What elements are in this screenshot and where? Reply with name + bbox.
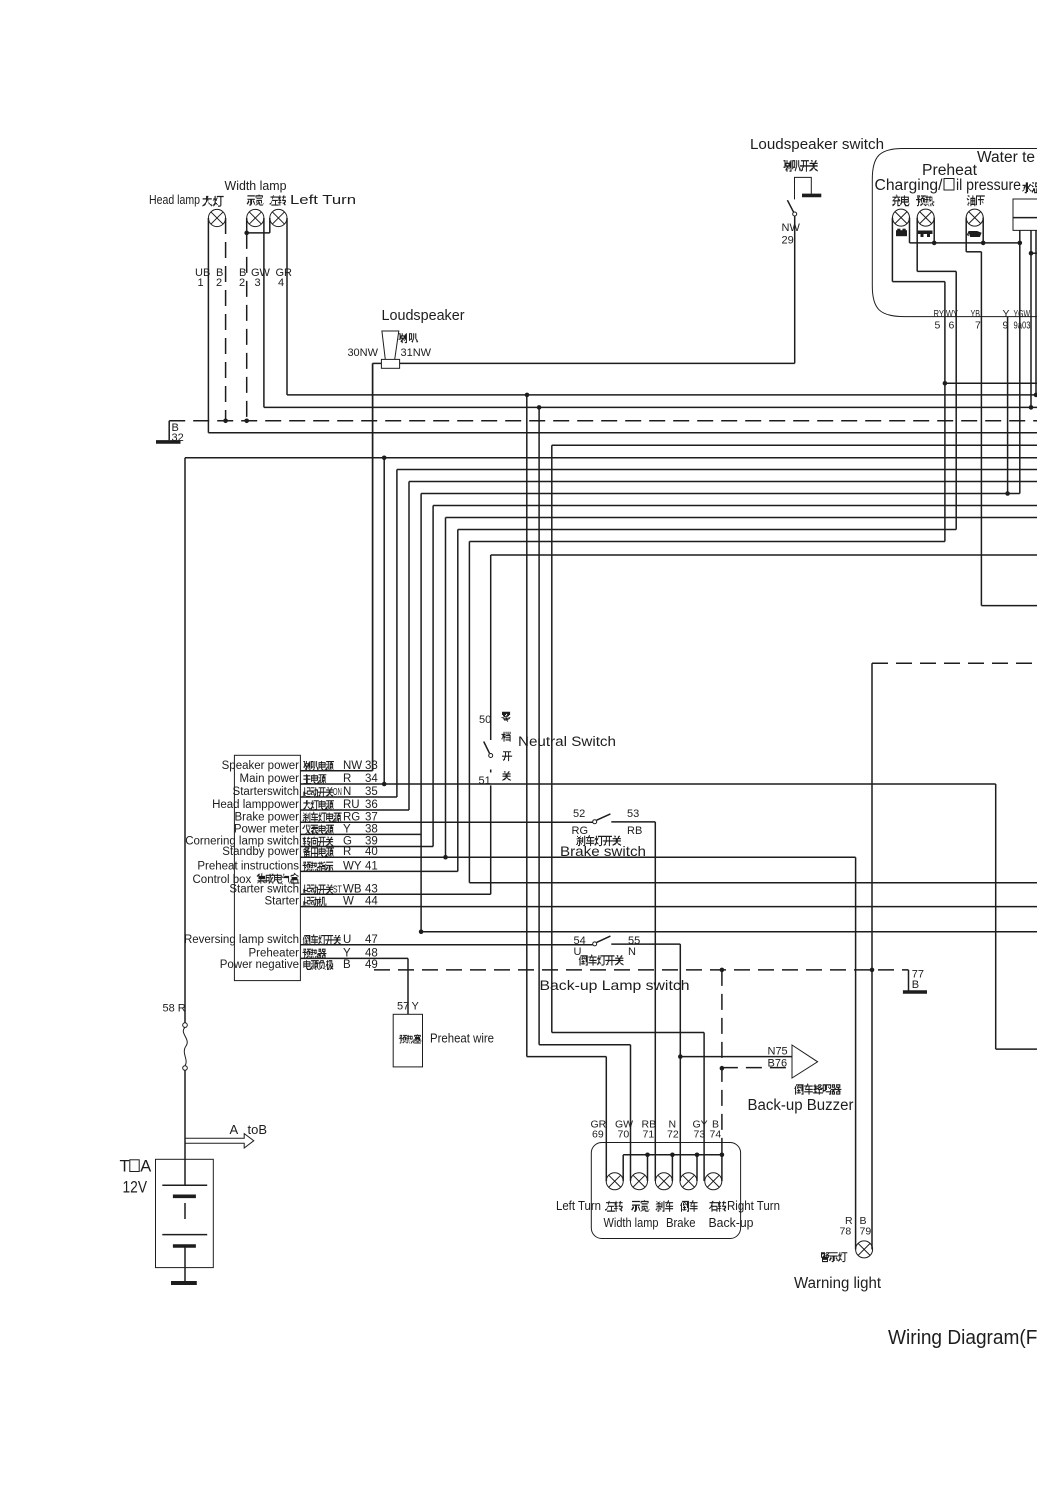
svg-text:Starter switch: Starter switch <box>229 883 299 895</box>
svg-text:71: 71 <box>643 1129 655 1141</box>
svg-text:B: B <box>912 979 919 991</box>
svg-text:T: T <box>120 1158 130 1176</box>
svg-text:B: B <box>343 959 351 971</box>
svg-text:Head lamppower: Head lamppower <box>212 799 299 811</box>
svg-text:35: 35 <box>365 786 378 798</box>
svg-text:YB: YB <box>971 308 981 320</box>
svg-text:6: 6 <box>949 320 955 332</box>
svg-text:31NW: 31NW <box>401 347 432 359</box>
svg-text:Brake power: Brake power <box>234 811 299 823</box>
svg-text:72: 72 <box>667 1129 679 1141</box>
svg-text:Standby power: Standby power <box>222 846 299 858</box>
svg-text:WY: WY <box>946 308 958 320</box>
svg-text:RG: RG <box>343 811 360 823</box>
svg-text:53: 53 <box>627 808 639 820</box>
svg-text:Width lamp: Width lamp <box>225 178 287 193</box>
svg-text:51: 51 <box>479 775 491 787</box>
svg-text:NW: NW <box>782 222 801 234</box>
svg-text:Warning light: Warning light <box>794 1275 882 1292</box>
svg-text:38: 38 <box>365 823 378 835</box>
svg-text:Neutral Switch: Neutral Switch <box>518 734 616 749</box>
svg-text:49: 49 <box>365 959 378 971</box>
svg-text:N: N <box>343 786 351 798</box>
svg-text:79: 79 <box>860 1226 872 1238</box>
svg-text:Back-up: Back-up <box>709 1216 754 1230</box>
svg-text:Y: Y <box>343 823 351 835</box>
svg-text:40: 40 <box>365 846 378 858</box>
svg-text:Y: Y <box>343 947 351 959</box>
svg-text:43: 43 <box>365 883 378 895</box>
svg-text:U: U <box>343 934 351 946</box>
svg-text:37: 37 <box>365 811 378 823</box>
svg-text:toB: toB <box>248 1122 268 1137</box>
svg-text:N75: N75 <box>768 1046 788 1058</box>
svg-text:4: 4 <box>278 277 284 289</box>
svg-text:Power meter: Power meter <box>234 823 299 835</box>
svg-text:N: N <box>628 946 636 958</box>
svg-text:47: 47 <box>365 934 378 946</box>
svg-text:B76: B76 <box>768 1058 788 1070</box>
svg-text:57: 57 <box>397 1001 409 1013</box>
svg-text:Width lamp: Width lamp <box>604 1216 659 1230</box>
svg-text:32: 32 <box>172 432 184 444</box>
svg-text:WY: WY <box>343 860 362 872</box>
svg-text:Water te: Water te <box>977 149 1035 166</box>
svg-text:36: 36 <box>365 799 378 811</box>
svg-text:RU: RU <box>343 799 360 811</box>
svg-text:50: 50 <box>479 714 491 726</box>
svg-text:Left Turn: Left Turn <box>556 1199 601 1213</box>
svg-text:1: 1 <box>198 277 204 289</box>
svg-text:Right Turn: Right Turn <box>727 1199 780 1213</box>
svg-text:7: 7 <box>975 320 981 332</box>
svg-text:73: 73 <box>694 1129 706 1141</box>
svg-text:2: 2 <box>216 277 222 289</box>
svg-text:41: 41 <box>365 860 378 872</box>
svg-text:A: A <box>230 1122 239 1137</box>
svg-text:3: 3 <box>255 277 261 289</box>
svg-text:9: 9 <box>1003 320 1009 332</box>
svg-text:Back-up Buzzer: Back-up Buzzer <box>748 1097 854 1114</box>
svg-text:Starterswitch: Starterswitch <box>233 786 299 798</box>
svg-text:Brake: Brake <box>666 1216 696 1230</box>
svg-text:34: 34 <box>365 773 378 785</box>
svg-text:58 R: 58 R <box>163 1003 186 1015</box>
svg-text:Y: Y <box>412 1001 420 1013</box>
svg-text:RG: RG <box>572 825 589 837</box>
svg-text:Main power: Main power <box>240 773 300 785</box>
svg-text:RY: RY <box>934 308 945 320</box>
svg-text:70: 70 <box>618 1129 630 1141</box>
svg-text:Starter: Starter <box>264 896 299 908</box>
svg-text:NW: NW <box>343 760 362 772</box>
svg-text:Back-up Lamp switch: Back-up Lamp switch <box>540 977 690 993</box>
svg-text:69: 69 <box>592 1129 604 1141</box>
svg-text:U: U <box>574 946 582 958</box>
svg-text:Y: Y <box>1003 308 1010 320</box>
svg-text:30NW: 30NW <box>347 347 378 359</box>
svg-text:48: 48 <box>365 947 378 959</box>
svg-text:2: 2 <box>239 277 245 289</box>
svg-text:R: R <box>343 846 351 858</box>
svg-text:44: 44 <box>365 896 378 908</box>
svg-text:9a03: 9a03 <box>1014 320 1031 332</box>
svg-text:il pressure: il pressure <box>956 177 1021 194</box>
svg-text:78: 78 <box>840 1226 852 1238</box>
svg-text:Left Turn: Left Turn <box>290 192 356 207</box>
svg-text:Preheat instructions: Preheat instructions <box>197 860 299 872</box>
svg-text:Head lamp: Head lamp <box>149 192 200 207</box>
svg-text:33: 33 <box>365 760 378 772</box>
svg-text:Brake switch: Brake switch <box>560 843 646 859</box>
svg-text:A: A <box>140 1158 151 1176</box>
svg-text:Speaker power: Speaker power <box>222 760 300 772</box>
svg-text:WB: WB <box>343 883 362 895</box>
svg-text:Loudspeaker: Loudspeaker <box>382 307 465 324</box>
svg-text:YGW: YGW <box>1014 308 1031 320</box>
svg-text:29: 29 <box>782 235 794 247</box>
svg-text:Preheater: Preheater <box>248 947 299 959</box>
svg-text:Reversing lamp switch: Reversing lamp switch <box>184 934 299 946</box>
svg-text:Charging/: Charging/ <box>875 177 944 194</box>
svg-text:5: 5 <box>935 320 941 332</box>
svg-text:W: W <box>343 896 354 908</box>
svg-text:Preheat wire: Preheat wire <box>430 1032 494 1046</box>
svg-text:Wiring Diagram(Fo: Wiring Diagram(Fo <box>888 1327 1037 1349</box>
svg-text:RB: RB <box>627 825 642 837</box>
svg-text:R: R <box>343 773 351 785</box>
svg-text:74: 74 <box>710 1129 722 1141</box>
svg-text:Power negative: Power negative <box>220 959 299 971</box>
svg-text:52: 52 <box>573 808 585 820</box>
svg-text:Loudspeaker switch: Loudspeaker switch <box>750 136 884 153</box>
svg-text:12V: 12V <box>123 1179 148 1197</box>
